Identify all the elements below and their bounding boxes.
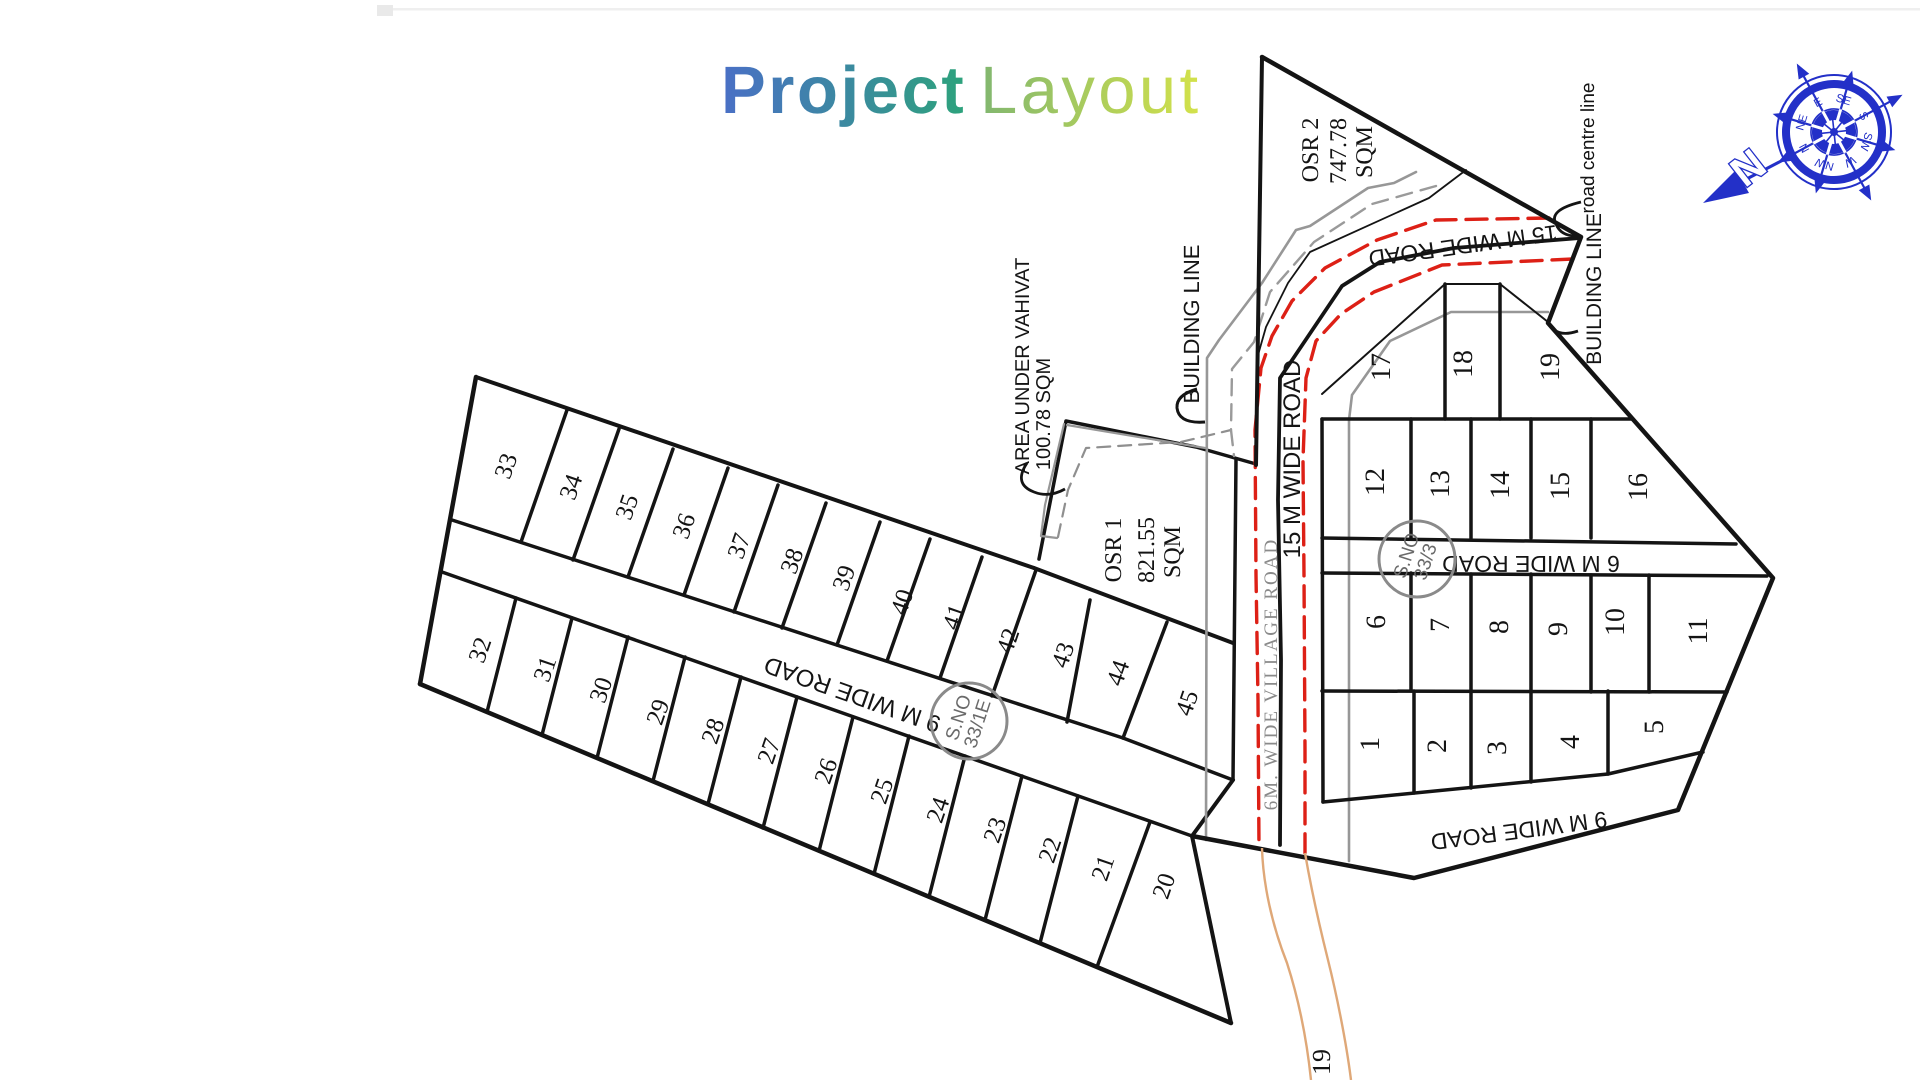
svg-text:38: 38: [776, 545, 810, 577]
svg-text:25: 25: [866, 775, 900, 807]
svg-text:12: 12: [1360, 468, 1391, 496]
svg-text:33: 33: [490, 450, 524, 482]
svg-text:5: 5: [1639, 720, 1670, 734]
svg-text:21: 21: [1087, 852, 1121, 884]
svg-text:747.78: 747.78: [1326, 118, 1352, 184]
svg-text:SQM: SQM: [1160, 526, 1186, 578]
svg-text:45: 45: [1171, 687, 1205, 719]
svg-text:44: 44: [1102, 656, 1136, 689]
svg-text:36: 36: [668, 510, 702, 542]
svg-text:9: 9: [1543, 622, 1574, 636]
svg-text:24: 24: [922, 793, 956, 826]
svg-text:7: 7: [1425, 618, 1456, 632]
svg-text:NW: NW: [1814, 155, 1836, 172]
svg-text:6M. WIDE VILLAGE ROAD: 6M. WIDE VILLAGE ROAD: [1261, 538, 1282, 810]
svg-text:100.78 SQM: 100.78 SQM: [1033, 358, 1055, 470]
svg-text:30: 30: [585, 674, 619, 706]
svg-text:1: 1: [1355, 737, 1386, 751]
svg-text:Layout: Layout: [980, 53, 1202, 128]
svg-text:9 M WIDE ROAD: 9 M WIDE ROAD: [1429, 806, 1608, 855]
svg-text:BUILDING LINE: BUILDING LINE: [1583, 213, 1606, 365]
svg-text:N: N: [1798, 141, 1813, 154]
svg-text:S: S: [1856, 110, 1870, 123]
svg-text:2: 2: [1422, 739, 1453, 753]
svg-text:3: 3: [1482, 741, 1513, 755]
svg-text:OSR 2: OSR 2: [1298, 118, 1324, 183]
svg-text:W: W: [1842, 153, 1857, 169]
svg-text:10: 10: [1600, 608, 1631, 636]
svg-text:road centre line: road centre line: [1578, 83, 1599, 214]
svg-text:OSR 1: OSR 1: [1101, 518, 1127, 583]
svg-text:14: 14: [1485, 471, 1516, 499]
svg-text:6: 6: [1361, 615, 1392, 629]
svg-text:821.55: 821.55: [1134, 517, 1160, 583]
svg-text:42: 42: [992, 625, 1026, 657]
svg-text:18: 18: [1448, 350, 1479, 378]
svg-text:Project: Project: [721, 53, 966, 128]
svg-text:20: 20: [1148, 870, 1182, 902]
svg-text:13: 13: [1425, 470, 1456, 498]
svg-text:19: 19: [1307, 1049, 1336, 1075]
svg-text:40: 40: [886, 586, 920, 618]
svg-text:29: 29: [642, 696, 676, 728]
svg-text:15 M WIDE ROAD: 15 M WIDE ROAD: [1279, 360, 1306, 559]
svg-text:23: 23: [979, 814, 1013, 846]
svg-text:4: 4: [1555, 735, 1586, 749]
svg-text:19: 19: [1535, 353, 1566, 381]
svg-text:16: 16: [1623, 473, 1654, 501]
svg-text:NE: NE: [1794, 113, 1810, 132]
svg-text:AREA UNDER VAHIVAT: AREA UNDER VAHIVAT: [1012, 258, 1034, 475]
svg-text:6 M WIDE ROAD: 6 M WIDE ROAD: [1442, 551, 1620, 577]
svg-text:SE: SE: [1834, 92, 1852, 108]
svg-text:8: 8: [1484, 620, 1515, 634]
svg-text:SQM: SQM: [1352, 126, 1378, 178]
svg-text:17: 17: [1366, 353, 1397, 381]
svg-text:15: 15: [1545, 472, 1576, 500]
svg-text:34: 34: [555, 470, 589, 503]
svg-text:11: 11: [1683, 618, 1714, 645]
svg-text:43: 43: [1047, 639, 1081, 671]
svg-text:32: 32: [464, 634, 498, 666]
svg-text:26: 26: [810, 755, 844, 787]
svg-text:SW: SW: [1857, 131, 1874, 152]
svg-text:BUILDING LINE: BUILDING LINE: [1179, 245, 1204, 404]
svg-text:E: E: [1812, 96, 1825, 110]
svg-text:35: 35: [611, 491, 645, 523]
